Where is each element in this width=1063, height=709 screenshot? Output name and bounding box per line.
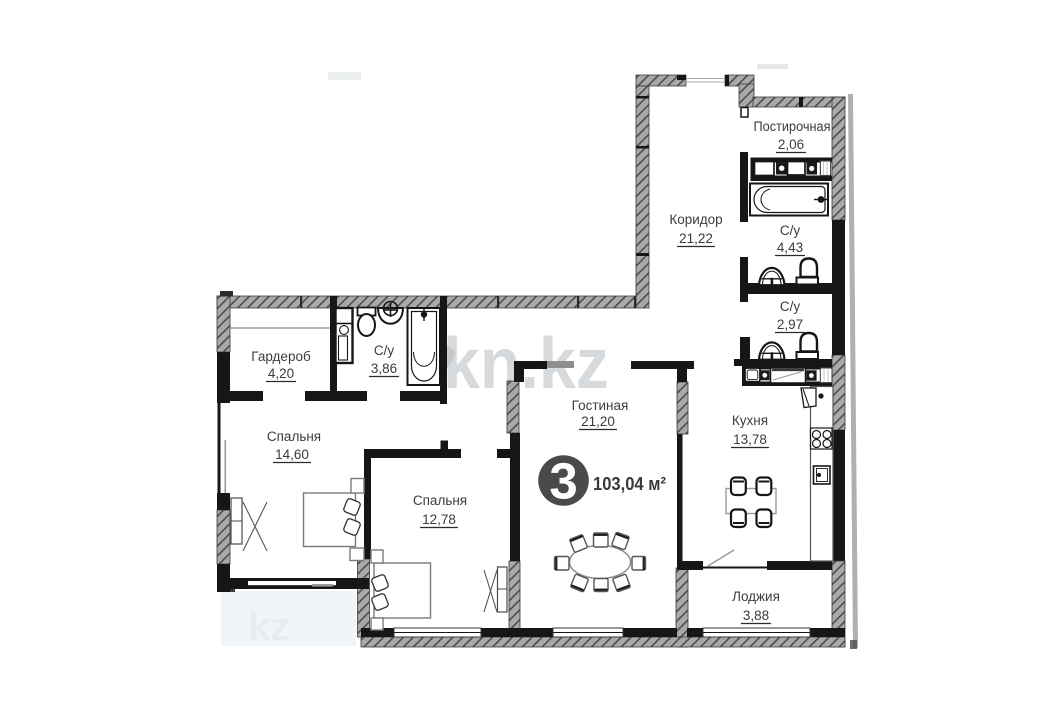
svg-text:3,86: 3,86 xyxy=(371,361,397,376)
svg-text:14,60: 14,60 xyxy=(275,447,309,462)
svg-text:2,06: 2,06 xyxy=(778,137,804,152)
svg-text:Коридор: Коридор xyxy=(669,212,722,227)
svg-text:С/у: С/у xyxy=(780,299,801,314)
svg-text:С/у: С/у xyxy=(780,223,801,238)
svg-text:Кухня: Кухня xyxy=(732,413,768,428)
svg-text:4,20: 4,20 xyxy=(268,366,294,381)
svg-text:12,78: 12,78 xyxy=(422,512,456,527)
svg-text:3,88: 3,88 xyxy=(743,608,769,623)
svg-text:13,78: 13,78 xyxy=(733,432,767,447)
svg-text:21,22: 21,22 xyxy=(679,231,713,246)
svg-text:Спальня: Спальня xyxy=(413,493,467,508)
svg-text:2,97: 2,97 xyxy=(777,317,803,332)
svg-text:Гостиная: Гостиная xyxy=(572,398,629,413)
svg-text:21,20: 21,20 xyxy=(581,414,615,429)
svg-text:Гардероб: Гардероб xyxy=(251,349,311,364)
svg-text:Постирочная: Постирочная xyxy=(754,119,831,134)
svg-text:103,04 м²: 103,04 м² xyxy=(593,473,666,494)
svg-text:kz: kz xyxy=(248,605,290,649)
svg-text:Спальня: Спальня xyxy=(267,429,321,444)
svg-text:3: 3 xyxy=(549,453,577,510)
svg-text:Лоджия: Лоджия xyxy=(732,589,780,604)
svg-text:4,43: 4,43 xyxy=(777,240,803,255)
svg-text:С/у: С/у xyxy=(374,343,395,358)
